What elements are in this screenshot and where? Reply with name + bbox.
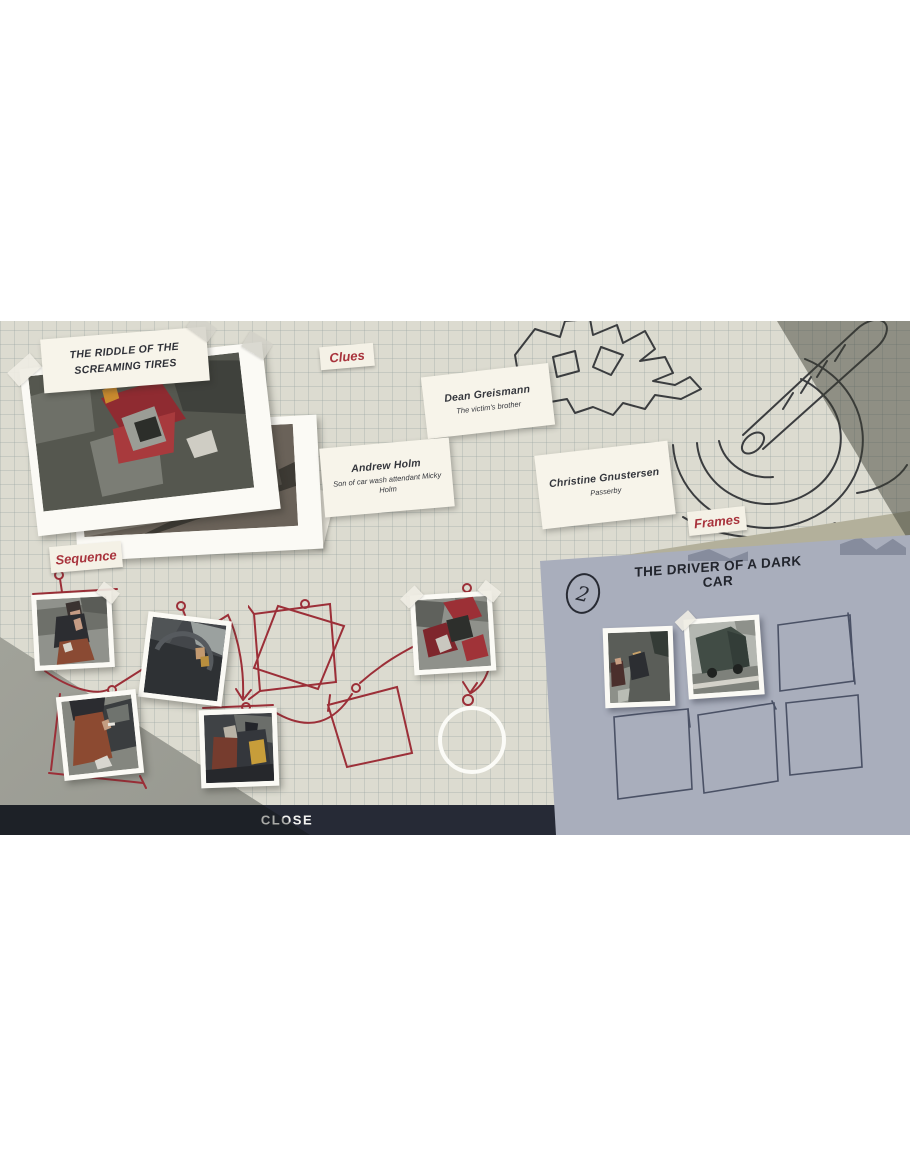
sequence-label-text: Sequence — [55, 547, 117, 567]
sequence-photo-3[interactable] — [56, 689, 144, 781]
sequence-photo-1-art — [36, 596, 109, 666]
sequence-photo-5[interactable] — [410, 591, 497, 676]
frame-photo-1-art — [608, 631, 670, 703]
game-screenshot: THE RIDDLE OF THE SCREAMING TIRES Clues … — [0, 0, 910, 1155]
frame-empty-slot-3[interactable] — [692, 699, 784, 799]
frame-photo-1[interactable] — [603, 626, 676, 708]
case-title: THE RIDDLE OF THE SCREAMING TIRES — [49, 338, 201, 381]
clues-label-text: Clues — [329, 347, 366, 365]
frame-photo-2[interactable] — [683, 614, 764, 699]
sequence-photo-3-art — [61, 695, 138, 776]
close-button-label: CLOSE — [261, 813, 313, 828]
tape — [241, 331, 273, 360]
frames-panel-number: 2 — [574, 580, 591, 606]
sequence-photo-4-art — [204, 713, 274, 783]
clue-description: Son of car wash attendant Micky Holm — [332, 470, 443, 500]
clues-section-label: Clues — [319, 343, 375, 371]
sequence-empty-slot-2[interactable] — [322, 681, 422, 775]
sequence-section-label: Sequence — [49, 541, 123, 573]
sequence-photo-5-art — [415, 596, 491, 670]
clue-card-andrew[interactable]: Andrew Holm Son of car wash attendant Mi… — [319, 437, 455, 517]
sequence-photo-4[interactable] — [199, 708, 280, 789]
frame-empty-slot-4[interactable] — [780, 693, 866, 783]
frame-empty-slot-1[interactable] — [770, 611, 858, 697]
panel-torn-shadow — [840, 537, 906, 555]
sequence-photo-1[interactable] — [31, 591, 115, 671]
clue-card-christine[interactable]: Christine Gnustersen Passerby — [534, 441, 676, 530]
pin-icon — [177, 602, 185, 610]
frame-empty-slot-2[interactable] — [604, 705, 698, 805]
sequence-photo-2[interactable] — [138, 611, 232, 707]
clue-description: Passerby — [590, 486, 622, 500]
frames-label-text: Frames — [693, 511, 741, 531]
pin-icon — [463, 695, 473, 705]
sequence-photo-2-art — [144, 617, 227, 701]
sequence-empty-slot-circle[interactable] — [438, 706, 506, 774]
frame-photo-2-art — [689, 620, 760, 694]
detective-board: THE RIDDLE OF THE SCREAMING TIRES Clues … — [0, 321, 910, 835]
pin-icon — [463, 584, 471, 592]
